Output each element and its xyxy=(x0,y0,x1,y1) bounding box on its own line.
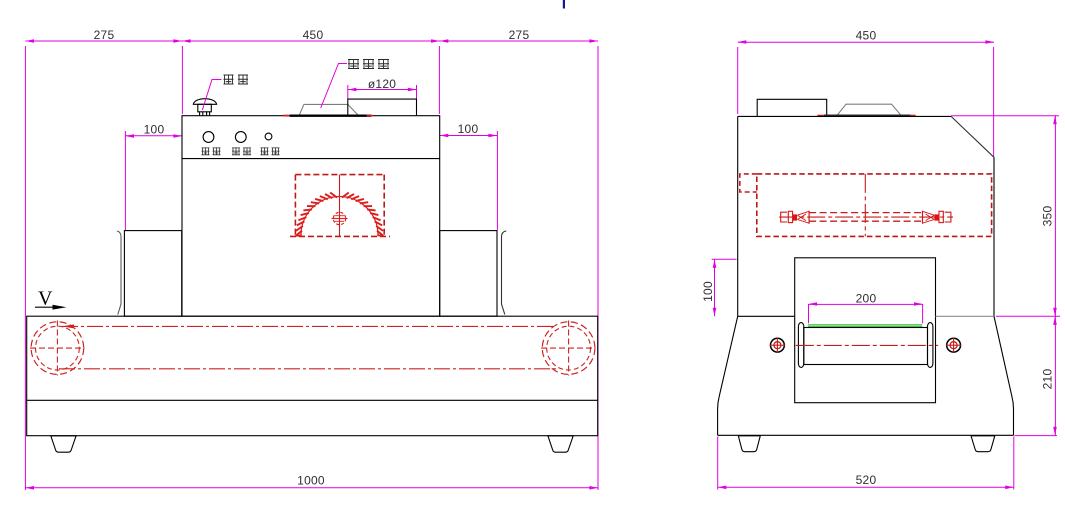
svg-text:V: V xyxy=(38,288,53,310)
svg-text:520: 520 xyxy=(856,473,877,487)
svg-text:450: 450 xyxy=(303,28,324,42)
svg-text:350: 350 xyxy=(1041,206,1055,227)
svg-text:210: 210 xyxy=(1041,369,1055,390)
svg-text:275: 275 xyxy=(509,28,530,42)
svg-text:100: 100 xyxy=(701,281,715,302)
svg-text:1000: 1000 xyxy=(297,474,325,488)
svg-text:200: 200 xyxy=(856,292,877,306)
svg-text:100: 100 xyxy=(144,123,165,137)
svg-text:ø120: ø120 xyxy=(368,77,396,91)
svg-text:275: 275 xyxy=(94,28,115,42)
svg-text:450: 450 xyxy=(856,29,877,43)
svg-text:100: 100 xyxy=(458,122,479,136)
